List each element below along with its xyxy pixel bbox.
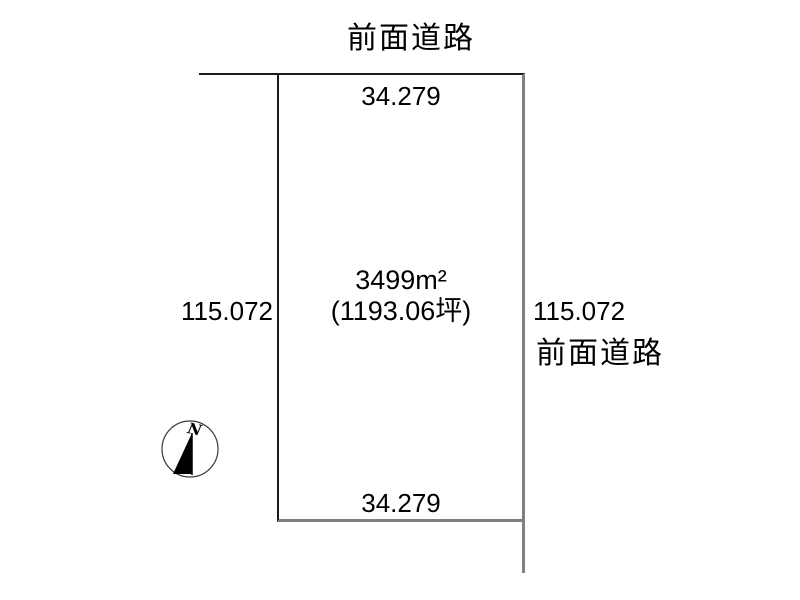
compass-north-label: N bbox=[185, 419, 204, 440]
left-dimension-label: 115.072 bbox=[143, 298, 273, 324]
parcel-area: 3499m² (1193.06坪) bbox=[277, 265, 525, 327]
parcel-area-m2: 3499m² bbox=[277, 265, 525, 296]
parcel-area-tsubo: (1193.06坪) bbox=[277, 296, 525, 327]
top-boundary-extension-line bbox=[199, 73, 277, 75]
right-boundary-extension-line bbox=[522, 520, 525, 573]
right-road-label: 前面道路 bbox=[536, 339, 664, 369]
right-dimension-label: 115.072 bbox=[533, 298, 625, 324]
land-plot-diagram: 前面道路 34.279 34.279 115.072 115.072 3499m… bbox=[0, 0, 800, 600]
compass-needle-icon bbox=[173, 433, 192, 474]
bottom-dimension-label: 34.279 bbox=[277, 490, 525, 516]
top-road-label: 前面道路 bbox=[261, 24, 561, 54]
top-dimension-label: 34.279 bbox=[277, 83, 525, 109]
compass-icon: N bbox=[160, 418, 224, 482]
